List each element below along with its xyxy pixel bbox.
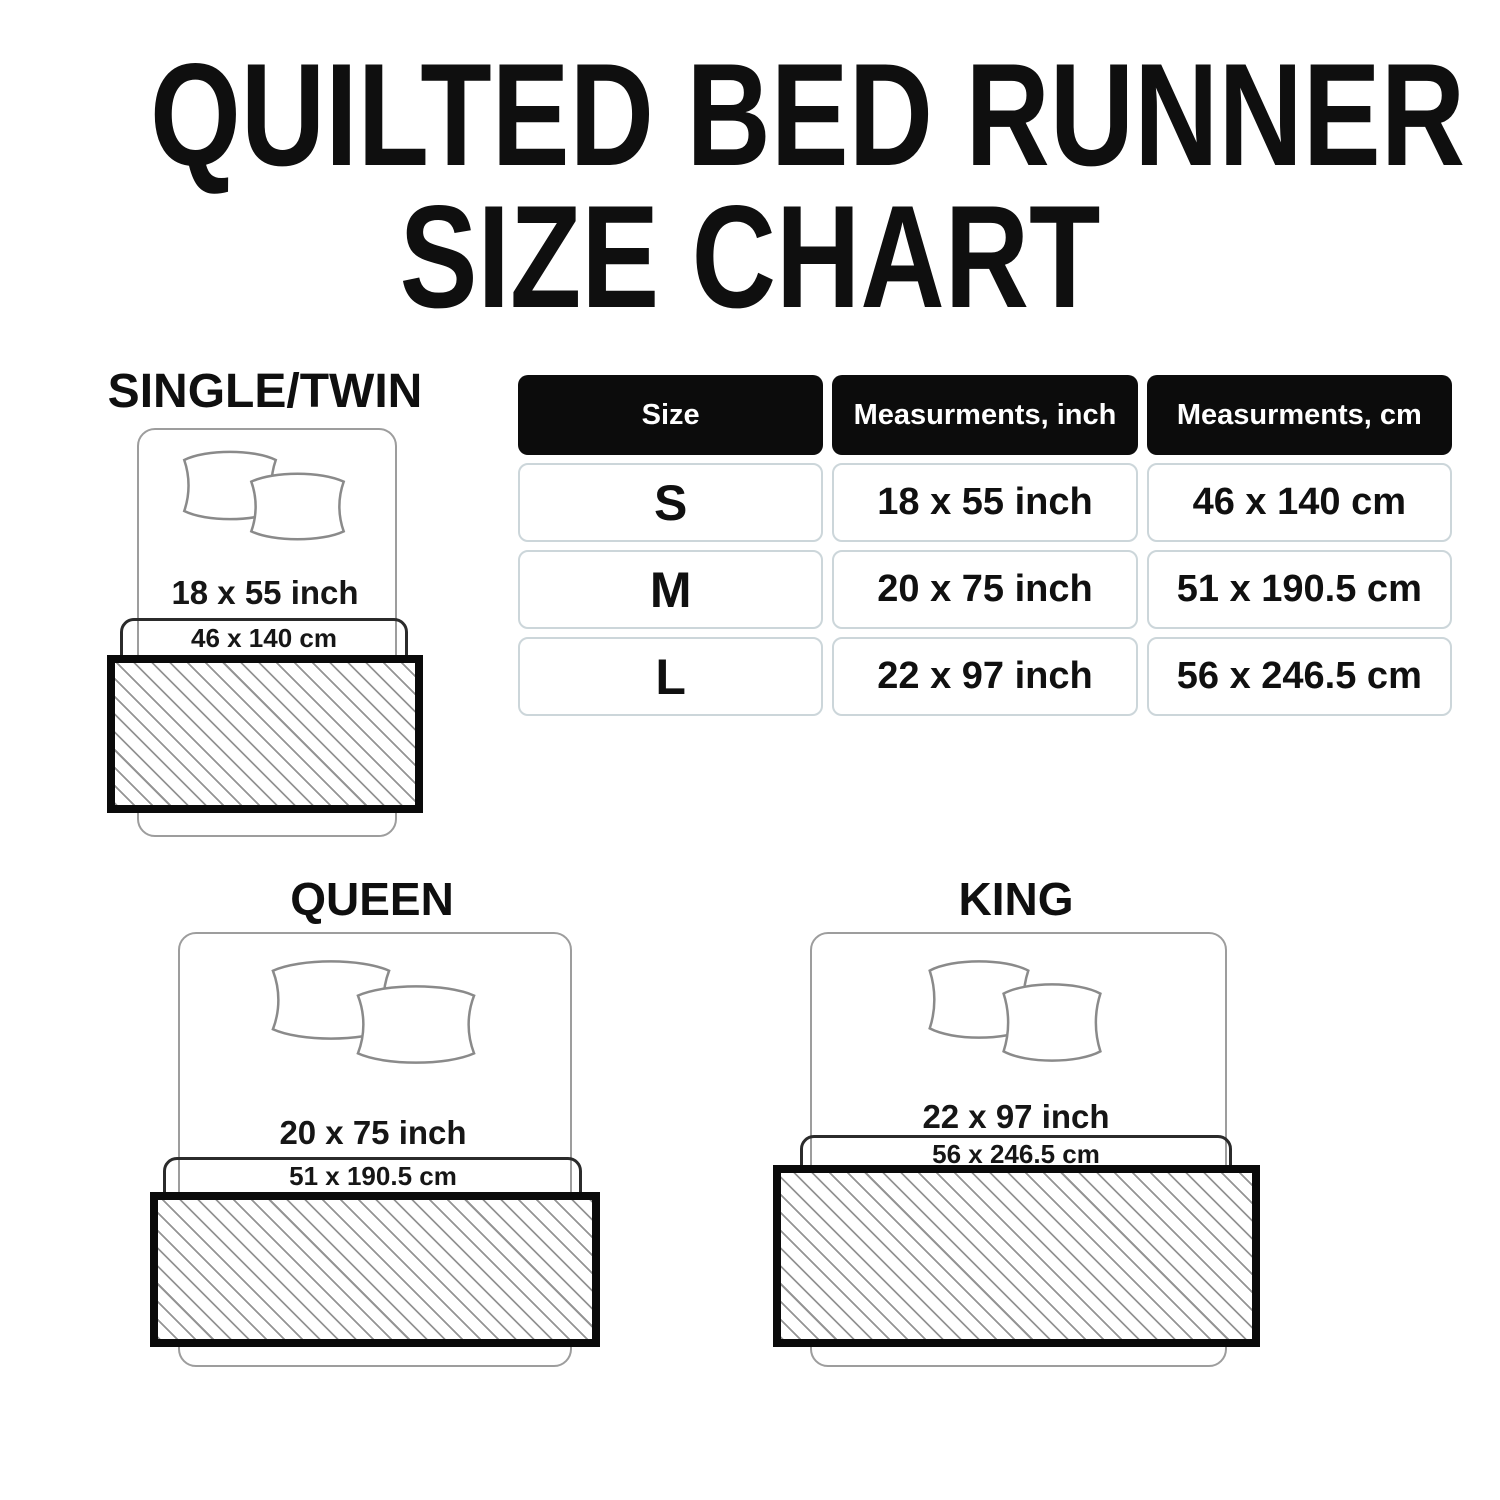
cell-size-s: S — [518, 463, 823, 542]
dimension-cm-label: 46 x 140 cm — [114, 623, 414, 654]
size-table-header-row: Size Measurments, inch Measurments, cm — [518, 375, 1452, 455]
diagram-label-queen: QUEEN — [222, 872, 522, 926]
size-table: Size Measurments, inch Measurments, cm S… — [518, 375, 1452, 724]
column-header-cm: Measurments, cm — [1147, 375, 1452, 455]
table-row: S 18 x 55 inch 46 x 140 cm — [518, 463, 1452, 542]
cell-cm-m: 51 x 190.5 cm — [1147, 550, 1452, 629]
pillows-icon — [265, 957, 483, 1069]
dimension-cm-label: 51 x 190.5 cm — [223, 1161, 523, 1192]
dimension-inch-label: 18 x 55 inch — [115, 574, 415, 612]
dimension-inch-label: 22 x 97 inch — [866, 1098, 1166, 1136]
cell-inch-l: 22 x 97 inch — [832, 637, 1137, 716]
diagram-label-king: KING — [866, 872, 1166, 926]
cell-size-m: M — [518, 550, 823, 629]
cell-inch-m: 20 x 75 inch — [832, 550, 1137, 629]
diagram-label-single-twin: SINGLE/TWIN — [95, 364, 435, 419]
dimension-inch-label: 20 x 75 inch — [223, 1114, 523, 1152]
cell-size-l: L — [518, 637, 823, 716]
runner-hatch-swatch — [107, 655, 423, 813]
pillow-icon — [251, 474, 343, 540]
cell-cm-s: 46 x 140 cm — [1147, 463, 1452, 542]
runner-hatch-swatch — [150, 1192, 600, 1347]
column-header-size: Size — [518, 375, 823, 455]
pillows-icon — [170, 440, 356, 546]
size-chart-infographic: QUILTED BED RUNNER SIZE CHART Size Measu… — [0, 0, 1500, 1500]
pillow-icon — [1004, 984, 1101, 1060]
cell-inch-s: 18 x 55 inch — [832, 463, 1137, 542]
runner-hatch-swatch — [773, 1165, 1260, 1347]
column-header-inch: Measurments, inch — [832, 375, 1137, 455]
pillows-icon — [923, 957, 1109, 1067]
table-row: L 22 x 97 inch 56 x 246.5 cm — [518, 637, 1452, 716]
page-title-line-2: SIZE CHART — [150, 184, 1350, 330]
page-title-line-1: QUILTED BED RUNNER — [150, 42, 1350, 188]
cell-cm-l: 56 x 246.5 cm — [1147, 637, 1452, 716]
pillow-icon — [358, 986, 474, 1062]
table-row: M 20 x 75 inch 51 x 190.5 cm — [518, 550, 1452, 629]
